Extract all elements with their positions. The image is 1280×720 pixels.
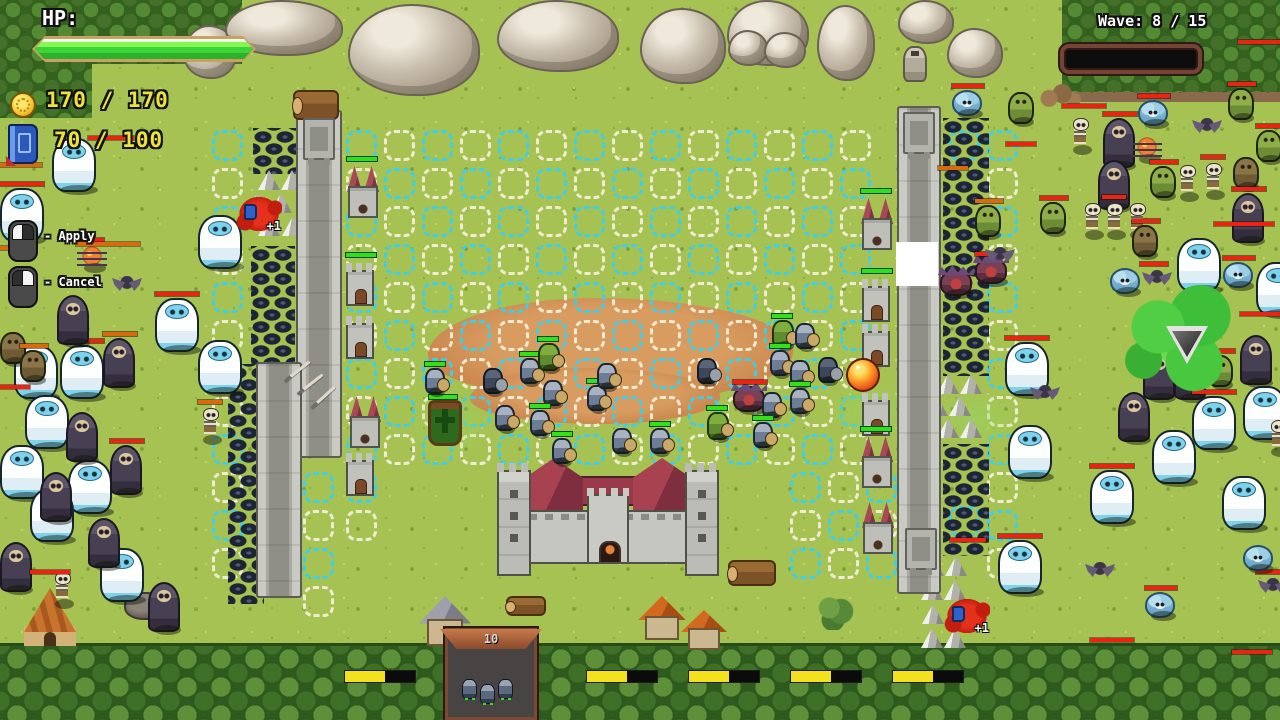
- reaper-enemy: [1118, 392, 1150, 442]
- soldier-unit: [707, 412, 729, 440]
- ally-health-bar: [520, 352, 540, 356]
- grid-cell[interactable]: [828, 510, 859, 541]
- plant-enemy: [940, 270, 972, 296]
- grid-cell[interactable]: [726, 282, 757, 313]
- grid-cell[interactable]: [574, 244, 605, 275]
- selection-cursor: [896, 242, 938, 286]
- yeti-enemy: [1008, 425, 1052, 479]
- skel-enemy: [1177, 165, 1197, 197]
- loot-drop: +1: [944, 596, 990, 636]
- soldier-unit: [483, 368, 503, 394]
- grid-cell[interactable]: [574, 282, 605, 313]
- ally-health-bar: [538, 337, 558, 341]
- castle-right-tower: [685, 470, 719, 576]
- grid-cell[interactable]: [303, 548, 334, 579]
- skel-enemy: [200, 408, 220, 440]
- grid-cell[interactable]: [828, 548, 859, 579]
- cooldown-bar: [688, 670, 760, 683]
- health-bar: [1238, 40, 1280, 44]
- reaper-enemy: [1232, 193, 1264, 243]
- yeti-enemy: [1192, 396, 1236, 450]
- grid-cell[interactable]: [764, 168, 795, 199]
- grid-cell[interactable]: [460, 320, 491, 351]
- spike-trap-strip: [251, 246, 295, 364]
- grid-cell[interactable]: [384, 130, 415, 161]
- grid-cell[interactable]: [422, 168, 453, 199]
- bush-decoration: [816, 596, 854, 630]
- grid-cell[interactable]: [764, 130, 795, 161]
- grid-cell[interactable]: [303, 510, 334, 541]
- gold-counter: 170 / 170: [46, 88, 169, 112]
- grid-cell[interactable]: [384, 244, 415, 275]
- gobg-enemy: [1150, 166, 1176, 198]
- bat-enemy: [1192, 118, 1222, 134]
- spike-cone: [921, 628, 943, 648]
- reaper-enemy: [66, 412, 98, 462]
- grid-cell[interactable]: [650, 358, 681, 389]
- log-decoration: [293, 90, 339, 120]
- enemy-health-bar: [1223, 256, 1255, 260]
- enemy-health-bar: [1228, 82, 1256, 86]
- grid-cell[interactable]: [688, 206, 719, 237]
- spellbook-icon: [8, 124, 38, 164]
- health-bar: [30, 570, 70, 574]
- grid-cell[interactable]: [303, 472, 334, 503]
- grid-cell[interactable]: [840, 130, 871, 161]
- grid-cell[interactable]: [384, 282, 415, 313]
- grid-cell[interactable]: [802, 168, 833, 199]
- castle-right-roof: [633, 458, 691, 510]
- grid-cell[interactable]: [384, 168, 415, 199]
- ally-health-bar: [530, 404, 550, 408]
- grid-cell[interactable]: [790, 472, 821, 503]
- tower-health-bar: [347, 157, 377, 161]
- cooldown-fill: [345, 671, 385, 682]
- health-bar: [950, 538, 986, 542]
- soldier-unit: [552, 438, 572, 464]
- gold-coin-icon: [10, 92, 36, 118]
- enemy-health-bar: [1150, 160, 1178, 164]
- enemy-health-bar: [1005, 336, 1049, 340]
- spike-cone: [922, 604, 944, 624]
- grid-cell[interactable]: [212, 130, 243, 161]
- boulder: [497, 0, 619, 72]
- enemy-health-bar: [1138, 94, 1170, 98]
- enemy-health-bar: [0, 182, 44, 186]
- enemy-health-bar: [1103, 112, 1137, 116]
- stone-wall[interactable]: [897, 106, 941, 594]
- cooldown-bar: [892, 670, 964, 683]
- bat-enemy: [1085, 562, 1115, 578]
- soldier-unit: [753, 422, 773, 448]
- wall-gate-fixture: [903, 112, 935, 154]
- grid-cell[interactable]: [650, 320, 681, 351]
- health-bar: [0, 385, 30, 389]
- right-click-icon: [8, 266, 38, 308]
- soldier-unit: [650, 428, 670, 454]
- grid-cell[interactable]: [688, 282, 719, 313]
- grid-cell[interactable]: [422, 282, 453, 313]
- yeti-enemy: [1152, 430, 1196, 484]
- grid-cell[interactable]: [536, 282, 567, 313]
- grid-cell[interactable]: [460, 282, 491, 313]
- ally-health-bar: [707, 406, 727, 410]
- soldier-unit: [795, 323, 815, 349]
- mana-counter: 70 / 100: [54, 128, 163, 152]
- grid-cell[interactable]: [536, 130, 567, 161]
- grid-cell[interactable]: [346, 510, 377, 541]
- boulder: [728, 30, 768, 66]
- defense-tower[interactable]: [346, 262, 374, 306]
- defense-tower[interactable]: [862, 502, 894, 554]
- soldier-unit: [538, 343, 560, 371]
- unit-card-panel[interactable]: 10: [445, 628, 537, 720]
- grid-cell[interactable]: [764, 206, 795, 237]
- grid-cell[interactable]: [802, 282, 833, 313]
- skel-enemy: [1104, 203, 1124, 235]
- grid-cell[interactable]: [726, 320, 757, 351]
- cooldown-bar: [790, 670, 862, 683]
- plus-one-label: +1: [975, 621, 989, 635]
- wall-gate-fixture: [905, 528, 937, 570]
- fluffy-enemy: [1145, 592, 1175, 618]
- health-bar: [1006, 142, 1036, 146]
- ally-health-bar: [650, 422, 670, 426]
- soldier-unit: [790, 388, 810, 414]
- apply-hint: - Apply: [44, 229, 95, 243]
- game-screen: HP: 170 / 170 70 / 100 - Apply - Cancel …: [0, 0, 1280, 720]
- reaper-enemy: [110, 445, 142, 495]
- reaper-enemy: [88, 518, 120, 568]
- statue-decoration: [903, 46, 927, 82]
- grid-cell[interactable]: [688, 168, 719, 199]
- reaper-enemy: [40, 472, 72, 522]
- enemy-health-bar: [1232, 187, 1266, 191]
- grid-cell[interactable]: [612, 320, 643, 351]
- defense-tower[interactable]: [346, 452, 374, 496]
- grid-cell[interactable]: [764, 282, 795, 313]
- spellbook-drop-icon: [952, 606, 965, 622]
- cooldown-fill: [587, 671, 627, 682]
- soldier-unit: [425, 368, 445, 394]
- soldier-unit: [530, 410, 550, 436]
- fluffy-enemy: [1138, 100, 1168, 126]
- ally-health-bar: [790, 382, 810, 386]
- houseO-decoration: [684, 610, 724, 650]
- grid-cell[interactable]: [726, 244, 757, 275]
- defense-tower[interactable]: [861, 198, 893, 250]
- skel-enemy: [1082, 203, 1102, 235]
- skel-enemy: [1203, 163, 1223, 195]
- grid-cell[interactable]: [422, 320, 453, 351]
- grid-cell[interactable]: [828, 472, 859, 503]
- soldier-unit: [543, 380, 563, 406]
- grid-cell[interactable]: [802, 244, 833, 275]
- enemy-health-bar: [733, 380, 767, 384]
- wave-counter: Wave: 8 / 15: [1098, 12, 1206, 30]
- grid-cell[interactable]: [764, 244, 795, 275]
- gobg-enemy: [975, 205, 1001, 237]
- yeti-enemy: [60, 345, 104, 399]
- grid-cell[interactable]: [612, 130, 643, 161]
- grid-cell[interactable]: [460, 130, 491, 161]
- cooldown-fill: [893, 671, 933, 682]
- ally-health-bar: [753, 416, 773, 420]
- grid-cell[interactable]: [612, 396, 643, 427]
- defense-tower[interactable]: [349, 396, 381, 448]
- boulder: [640, 8, 726, 84]
- grid-cell[interactable]: [498, 206, 529, 237]
- cancel-hint: - Cancel: [44, 275, 102, 289]
- gobb-enemy: [1233, 157, 1259, 189]
- castle: [497, 458, 719, 580]
- grid-cell[interactable]: [840, 168, 871, 199]
- log-decoration: [506, 596, 546, 616]
- grid-cell[interactable]: [498, 282, 529, 313]
- grid-cell[interactable]: [346, 358, 377, 389]
- enemy-health-bar: [998, 534, 1042, 538]
- grid-cell[interactable]: [612, 206, 643, 237]
- cooldown-bar: [586, 670, 658, 683]
- yeti-enemy: [155, 298, 199, 352]
- yeti-enemy: [998, 540, 1042, 594]
- enemy-health-bar: [1132, 219, 1160, 223]
- ally-health-bar: [770, 344, 790, 348]
- bat-enemy: [1258, 578, 1280, 594]
- health-bar: [1214, 222, 1274, 226]
- grid-cell[interactable]: [790, 510, 821, 541]
- yeti-enemy: [1090, 470, 1134, 524]
- soldier-unit: [597, 363, 617, 389]
- hp-label: HP:: [42, 6, 78, 30]
- grid-cell[interactable]: [650, 282, 681, 313]
- enemy-health-bar: [155, 292, 199, 296]
- unit-count-badge: 10: [440, 629, 542, 649]
- stone-wall[interactable]: [256, 362, 302, 598]
- grid-cell[interactable]: [422, 244, 453, 275]
- grid-cell[interactable]: [536, 168, 567, 199]
- enemy-health-bar: [1102, 195, 1126, 199]
- defense-tower[interactable]: [861, 436, 893, 488]
- enemy-health-bar: [1256, 124, 1280, 128]
- health-bar: [1240, 312, 1280, 316]
- rally-banner[interactable]: [428, 400, 462, 446]
- reaper-enemy: [57, 295, 89, 345]
- grid-cell[interactable]: [536, 206, 567, 237]
- grid-cell[interactable]: [384, 206, 415, 237]
- gobg-enemy: [1256, 130, 1280, 162]
- gobb-enemy: [1132, 225, 1158, 257]
- yeti-enemy: [1256, 262, 1280, 316]
- knight-unit-icon: [498, 679, 513, 699]
- grid-cell[interactable]: [790, 548, 821, 579]
- skel-enemy: [1070, 118, 1090, 150]
- grid-cell[interactable]: [460, 244, 491, 275]
- reaper-enemy: [1240, 335, 1272, 385]
- ally-health-bar: [425, 362, 445, 366]
- enemy-health-bar: [20, 344, 48, 348]
- soldier-unit: [770, 350, 790, 376]
- reaper-enemy: [0, 542, 32, 592]
- reaper-enemy: [103, 338, 135, 388]
- reaper-enemy: [148, 582, 180, 632]
- grid-cell[interactable]: [574, 206, 605, 237]
- soldier-unit: [762, 392, 782, 418]
- grid-cell[interactable]: [726, 130, 757, 161]
- boulder: [817, 5, 875, 81]
- boulder: [764, 32, 806, 68]
- castle-left-tower: [497, 470, 531, 576]
- enemy-health-bar: [110, 439, 144, 443]
- grid-cell[interactable]: [384, 320, 415, 351]
- enemy-health-bar: [952, 84, 984, 88]
- bat-enemy: [985, 247, 1015, 263]
- grid-cell[interactable]: [726, 206, 757, 237]
- grid-cell[interactable]: [726, 358, 757, 389]
- grid-cell[interactable]: [422, 206, 453, 237]
- grid-cell[interactable]: [650, 168, 681, 199]
- spider-enemy: [80, 246, 104, 268]
- grid-cell[interactable]: [650, 244, 681, 275]
- gobg-enemy: [1040, 202, 1066, 234]
- player-hp-bar: [32, 36, 256, 62]
- bat-enemy: [1030, 385, 1060, 401]
- player-hp-fill: [35, 39, 253, 59]
- grid-cell[interactable]: [460, 168, 491, 199]
- tower-health-bar: [861, 189, 891, 193]
- soldier-unit: [520, 358, 540, 384]
- soldier-unit: [818, 357, 838, 383]
- boulder: [947, 28, 1003, 78]
- grid-cell[interactable]: [650, 130, 681, 161]
- defense-tower[interactable]: [346, 315, 374, 359]
- gobg-enemy: [1228, 88, 1254, 120]
- defense-tower[interactable]: [347, 166, 379, 218]
- tower-health-bar: [862, 269, 892, 273]
- grid-cell[interactable]: [612, 168, 643, 199]
- wave-progress-bar: [1060, 44, 1202, 74]
- grid-cell[interactable]: [574, 130, 605, 161]
- boulder: [898, 0, 954, 44]
- ally-health-bar: [552, 432, 572, 436]
- grid-cell[interactable]: [650, 206, 681, 237]
- soldier-unit: [495, 405, 515, 431]
- plant-enemy: [733, 386, 765, 412]
- grid-cell[interactable]: [498, 168, 529, 199]
- stone-wall[interactable]: [296, 110, 342, 458]
- health-bar: [1062, 104, 1106, 108]
- grid-cell[interactable]: [498, 320, 529, 351]
- knight-unit-icon: [462, 679, 477, 699]
- gobb-enemy: [20, 350, 46, 382]
- yeti-enemy: [25, 395, 69, 449]
- health-bar: [1090, 638, 1134, 642]
- health-bar: [1232, 650, 1272, 654]
- yeti-enemy: [68, 460, 112, 514]
- skel-enemy: [1268, 420, 1280, 452]
- defense-tower[interactable]: [862, 278, 890, 322]
- enemy-health-bar: [1201, 155, 1225, 159]
- grid-cell[interactable]: [536, 244, 567, 275]
- tower-health-bar: [346, 253, 376, 257]
- grid-cell[interactable]: [384, 358, 415, 389]
- spike-trap-strip: [943, 118, 989, 376]
- grid-cell[interactable]: [212, 282, 243, 313]
- grid-cell[interactable]: [726, 168, 757, 199]
- enemy-health-bar: [1090, 464, 1134, 468]
- spike-trap-strip: [253, 128, 297, 174]
- yeti-enemy: [1222, 476, 1266, 530]
- boulder: [348, 4, 480, 96]
- fireball-projectile: [846, 358, 880, 392]
- yeti-enemy: [198, 340, 242, 394]
- cooldown-fill: [791, 671, 831, 682]
- enemy-health-bar: [975, 199, 1003, 203]
- grid-cell[interactable]: [422, 130, 453, 161]
- plus-one-label: +1: [267, 219, 281, 233]
- enemy-health-bar: [1145, 586, 1177, 590]
- grid-cell[interactable]: [612, 282, 643, 313]
- tower-health-bar: [861, 427, 891, 431]
- grid-cell[interactable]: [688, 244, 719, 275]
- grid-cell[interactable]: [612, 244, 643, 275]
- fluffy-enemy: [952, 90, 982, 116]
- log-decoration: [728, 560, 776, 586]
- soldier-unit: [697, 358, 717, 384]
- grid-cell[interactable]: [688, 130, 719, 161]
- enemy-health-bar: [103, 332, 137, 336]
- skel-enemy: [52, 572, 72, 604]
- knight-unit-icon: [480, 684, 495, 704]
- grid-cell[interactable]: [498, 244, 529, 275]
- grid-cell[interactable]: [574, 168, 605, 199]
- grid-cell[interactable]: [460, 206, 491, 237]
- enemy-health-bar: [1140, 262, 1168, 266]
- cooldown-fill: [689, 671, 729, 682]
- enemy-health-bar: [1040, 196, 1068, 200]
- spellbook-drop-icon: [244, 204, 257, 220]
- grid-cell[interactable]: [987, 168, 1018, 199]
- soldier-unit: [612, 428, 632, 454]
- fluffy-enemy: [1243, 545, 1273, 571]
- enemy-health-bar: [198, 400, 222, 404]
- castle-left-roof: [525, 458, 583, 510]
- grid-cell[interactable]: [498, 130, 529, 161]
- castle-keep-gate: [587, 494, 629, 564]
- houseO-decoration: [641, 596, 683, 640]
- wall-gate-fixture: [303, 118, 335, 160]
- spider-enemy: [1135, 137, 1159, 159]
- ally-health-bar: [772, 314, 792, 318]
- grid-cell[interactable]: [574, 320, 605, 351]
- grid-cell[interactable]: [303, 586, 334, 617]
- spike-cone: [960, 374, 982, 394]
- gobg-enemy: [1008, 92, 1034, 124]
- spike-cone: [945, 556, 967, 576]
- health-bar: [938, 166, 968, 170]
- bat-enemy: [112, 276, 142, 292]
- grid-cell[interactable]: [802, 206, 833, 237]
- grid-cell[interactable]: [802, 130, 833, 161]
- loot-drop: +1: [236, 194, 282, 234]
- cooldown-bar: [344, 670, 416, 683]
- left-click-icon: [8, 220, 38, 262]
- grid-cell[interactable]: [688, 320, 719, 351]
